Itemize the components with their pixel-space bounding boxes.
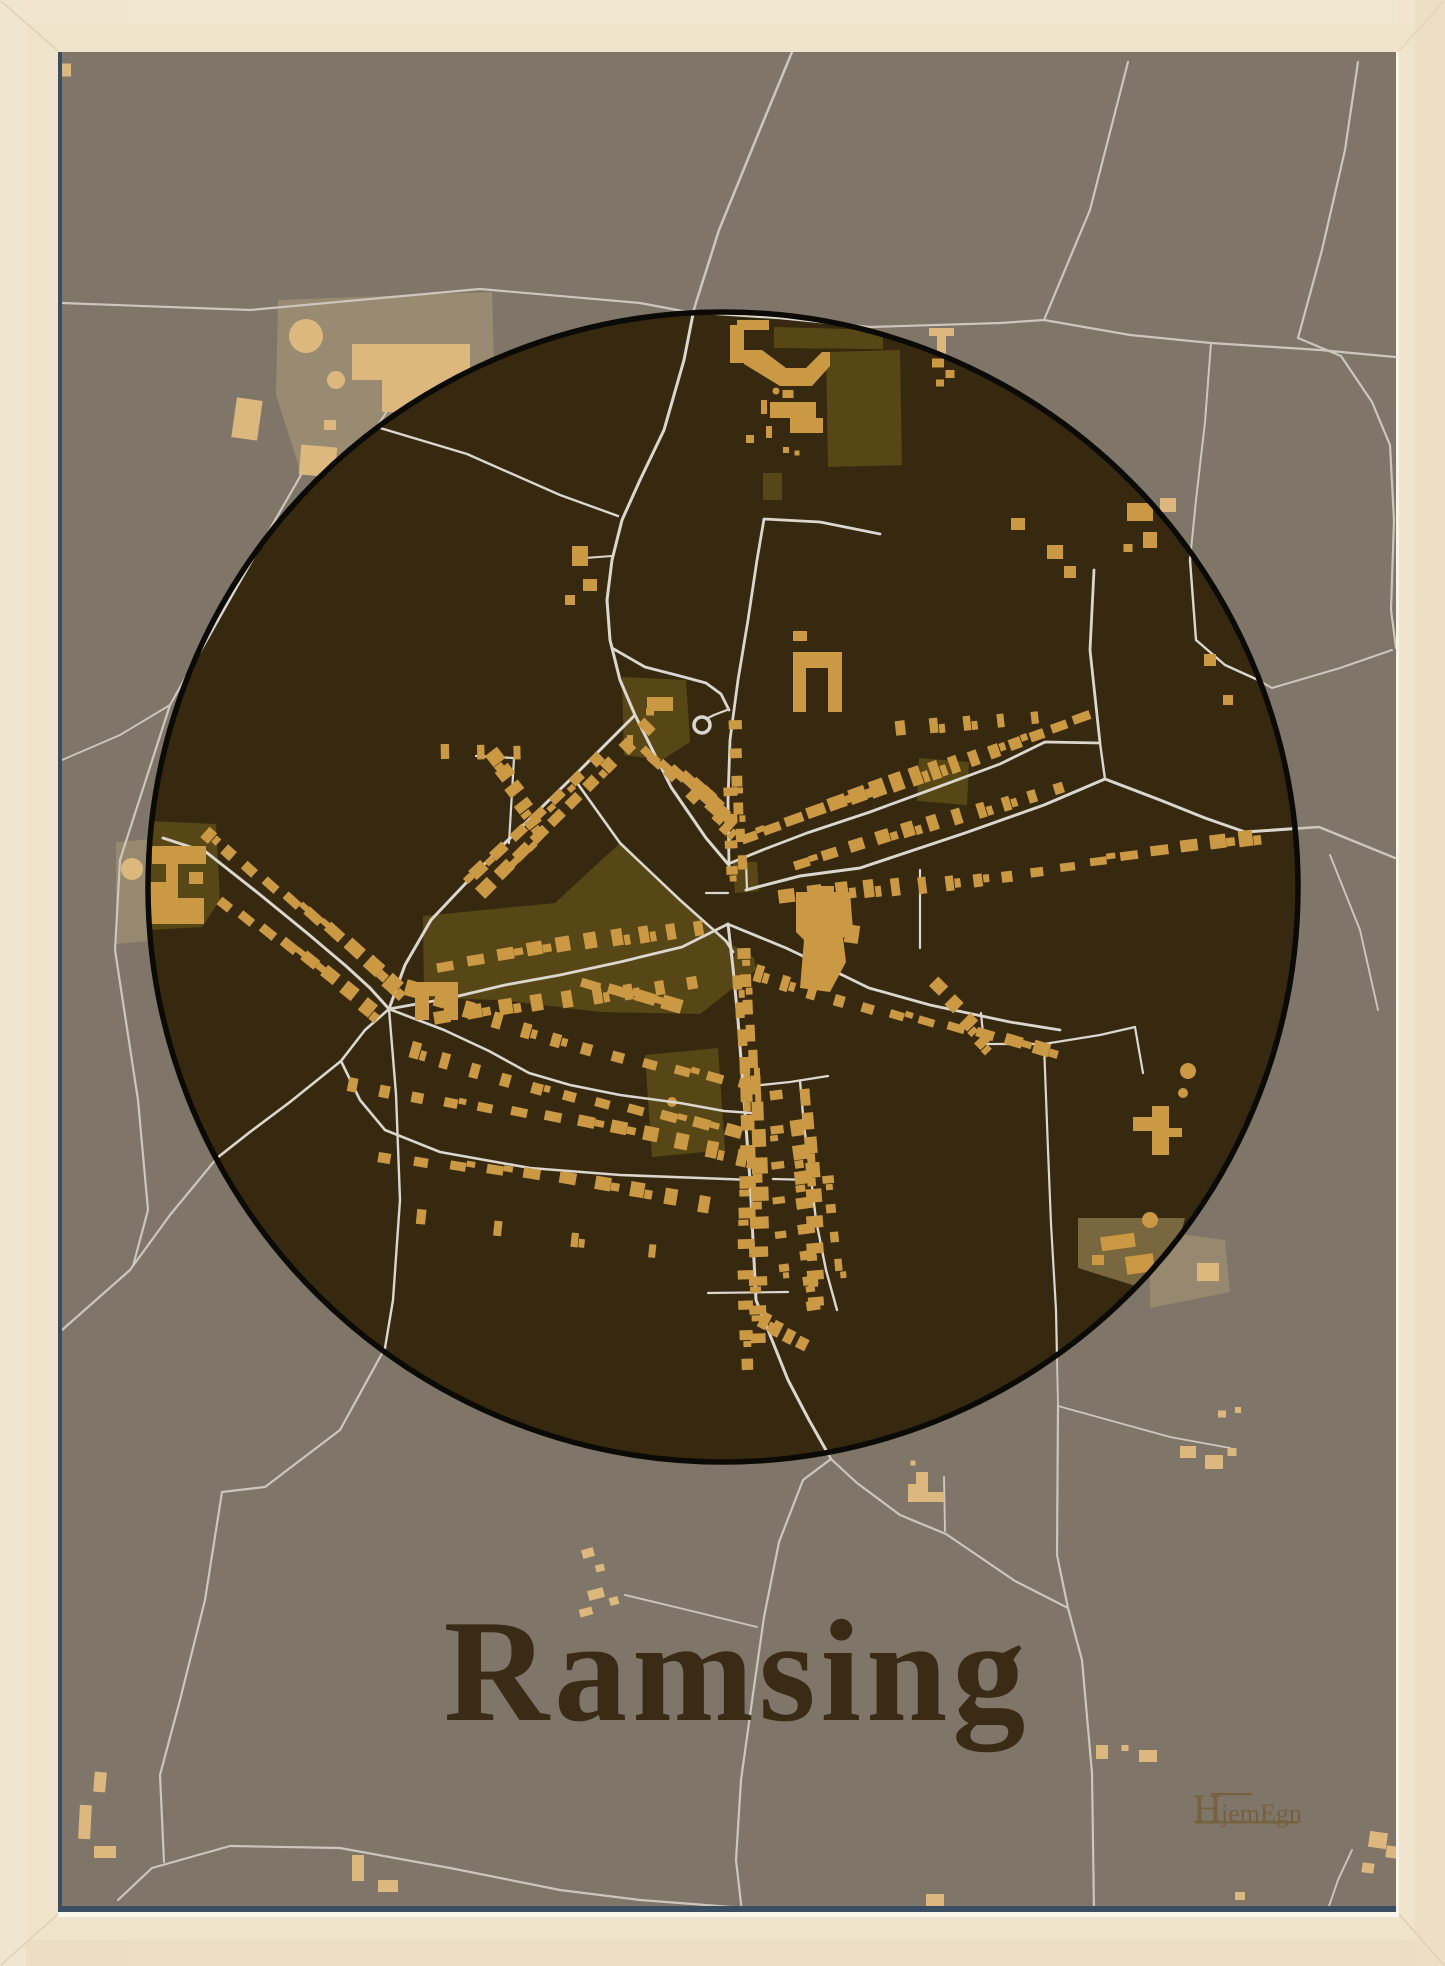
svg-text:jemEgn: jemEgn [1220,1799,1302,1828]
svg-text:H: H [1193,1786,1222,1831]
svg-text:Ramsing: Ramsing [444,1590,1031,1752]
